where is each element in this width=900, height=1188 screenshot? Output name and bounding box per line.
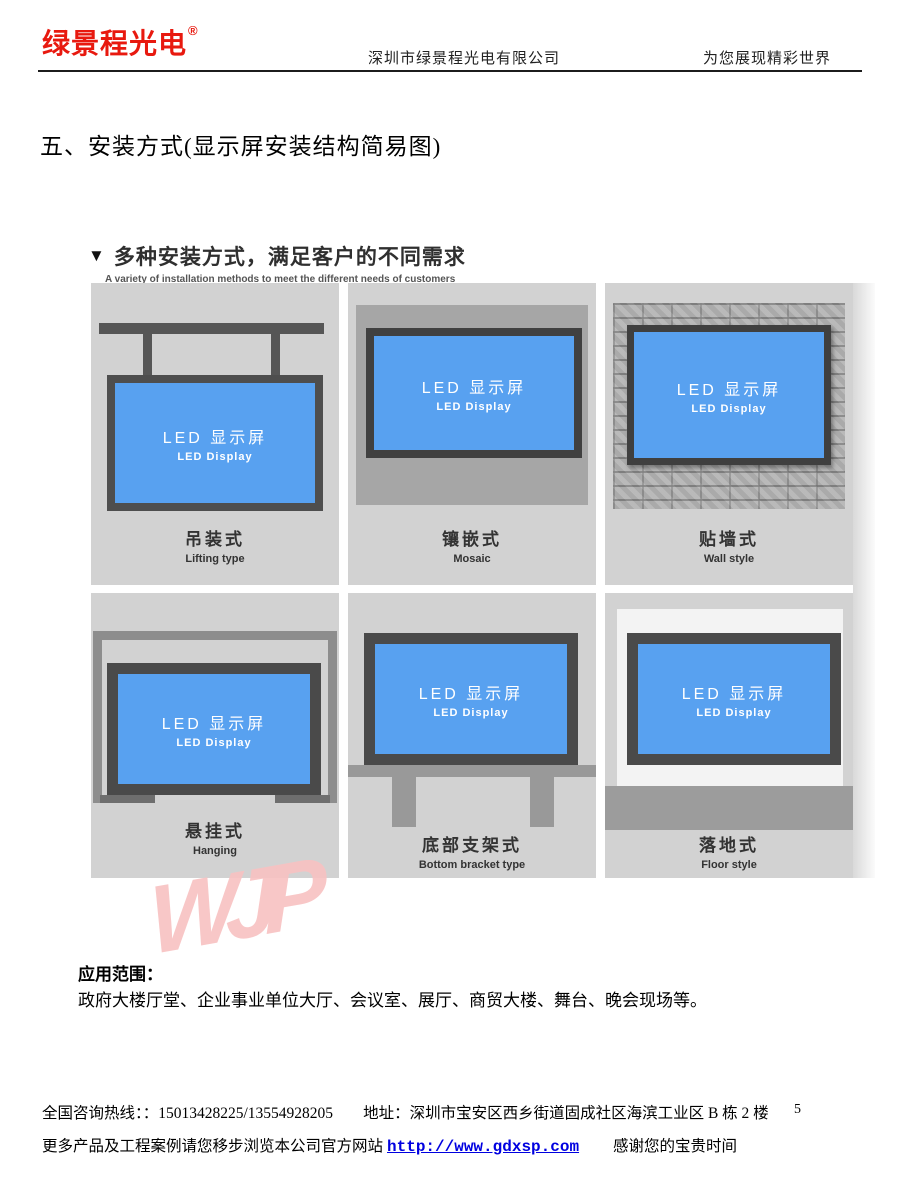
- panel-bottom-bracket: LED 显示屏 LED Display 底部支架式 Bottom bracket…: [348, 593, 596, 878]
- panel-label-cn: 吊装式: [91, 529, 339, 552]
- screen-label-en: LED Display: [436, 401, 511, 413]
- panel-label: 吊装式 Lifting type: [91, 529, 339, 567]
- led-display: LED 显示屏 LED Display: [364, 633, 578, 765]
- footer-line2-prefix: 更多产品及工程案例请您移步浏览本公司官方网站: [42, 1138, 383, 1155]
- header-company-name: 深圳市绿景程光电有限公司: [368, 47, 560, 68]
- registered-trademark-icon: ®: [188, 23, 199, 38]
- panel-label-en: Mosaic: [348, 552, 596, 567]
- base-foot: [275, 795, 330, 803]
- screen-label-cn: LED 显示屏: [682, 680, 787, 704]
- panel-hanging: LED 显示屏 LED Display 悬挂式 Hanging: [91, 593, 339, 878]
- footer-hotline: 全国咨询热线：：15013428225/13554928205: [42, 1105, 333, 1122]
- section-title: 五、安装方式(显示屏安装结构简易图): [40, 127, 441, 161]
- panel-label-en: Lifting type: [91, 552, 339, 567]
- panel-label-cn: 悬挂式: [91, 821, 339, 844]
- panel-label: 贴墙式 Wall style: [605, 529, 853, 567]
- footer-address: 地址：深圳市宝安区西乡街道固成社区海滨工业区 B 栋 2 楼: [363, 1105, 769, 1122]
- panel-mosaic: LED 显示屏 LED Display 镶嵌式 Mosaic: [348, 283, 596, 585]
- led-display: LED 显示屏 LED Display: [627, 325, 831, 465]
- header-slogan: 为您展现精彩世界: [703, 47, 831, 68]
- panel-lifting: LED 显示屏 LED Display 吊装式 Lifting type: [91, 283, 339, 585]
- side-post: [93, 631, 102, 803]
- led-display: LED 显示屏 LED Display: [366, 328, 582, 458]
- hanger-rod: [271, 334, 280, 376]
- panel-label-cn: 底部支架式: [348, 835, 596, 858]
- screen-label-en: LED Display: [177, 451, 252, 463]
- diagram-grid: LED 显示屏 LED Display 吊装式 Lifting type LED…: [91, 283, 853, 878]
- diagram-title: 多种安装方式，满足客户的不同需求: [114, 241, 466, 271]
- top-bar: [93, 631, 337, 640]
- bracket-leg: [392, 777, 416, 827]
- screen-label-cn: LED 显示屏: [419, 680, 524, 704]
- panel-label-cn: 镶嵌式: [348, 529, 596, 552]
- website-link[interactable]: http://www.gdxsp.com: [387, 1138, 579, 1156]
- application-body: 政府大楼厅堂、企业事业单位大厅、会议室、展厅、商贸大楼、舞台、晚会现场等。: [78, 988, 707, 1014]
- panel-label-en: Wall style: [605, 552, 853, 567]
- page-number: 5: [794, 1102, 801, 1118]
- panel-label-cn: 落地式: [605, 835, 853, 858]
- screen-label-en: LED Display: [176, 737, 251, 749]
- floor-base: [605, 786, 853, 830]
- panel-label-cn: 贴墙式: [605, 529, 853, 552]
- bracket-bar: [348, 765, 596, 777]
- installation-diagram: ▼ 多种安装方式，满足客户的不同需求 A variety of installa…: [88, 241, 878, 881]
- panel-label: 底部支架式 Bottom bracket type: [348, 835, 596, 873]
- bracket-leg: [530, 777, 554, 827]
- panel-label: 悬挂式 Hanging: [91, 821, 339, 859]
- side-post: [328, 631, 337, 803]
- screen-label-cn: LED 显示屏: [163, 424, 268, 448]
- ceiling-bar: [99, 323, 324, 334]
- hanger-rod: [143, 334, 152, 376]
- screen-label-en: LED Display: [691, 403, 766, 415]
- led-display: LED 显示屏 LED Display: [627, 633, 841, 765]
- application-range: 应用范围： 政府大楼厅堂、企业事业单位大厅、会议室、展厅、商贸大楼、舞台、晚会现…: [78, 962, 707, 1015]
- company-logo: 绿景程光电®: [42, 22, 199, 62]
- panel-label-en: Floor style: [605, 858, 853, 873]
- screen-label-cn: LED 显示屏: [162, 710, 267, 734]
- screen-label-en: LED Display: [696, 707, 771, 719]
- document-page: 绿景程光电® 深圳市绿景程光电有限公司 为您展现精彩世界 五、安装方式(显示屏安…: [0, 0, 900, 1188]
- screen-label-en: LED Display: [433, 707, 508, 719]
- screen-label-cn: LED 显示屏: [677, 376, 782, 400]
- panel-label-en: Bottom bracket type: [348, 858, 596, 873]
- right-fade-strip: [853, 283, 875, 878]
- led-display: LED 显示屏 LED Display: [107, 663, 321, 795]
- led-display: LED 显示屏 LED Display: [107, 375, 323, 511]
- header-divider: [38, 70, 862, 72]
- footer-line2: 更多产品及工程案例请您移步浏览本公司官方网站http://www.gdxsp.c…: [42, 1134, 862, 1156]
- panel-floor-style: LED 显示屏 LED Display 落地式 Floor style: [605, 593, 853, 878]
- diagram-header: ▼ 多种安装方式，满足客户的不同需求: [88, 241, 878, 271]
- base-foot: [100, 795, 155, 803]
- footer-thanks: 感谢您的宝贵时间: [613, 1138, 737, 1155]
- panel-wall-style: LED 显示屏 LED Display 贴墙式 Wall style: [605, 283, 853, 585]
- triangle-marker-icon: ▼: [88, 246, 105, 266]
- panel-label: 镶嵌式 Mosaic: [348, 529, 596, 567]
- panel-label: 落地式 Floor style: [605, 835, 853, 873]
- panel-label-en: Hanging: [91, 844, 339, 859]
- footer-line1: 全国咨询热线：：15013428225/13554928205地址：深圳市宝安区…: [42, 1101, 862, 1123]
- application-heading: 应用范围：: [78, 962, 707, 988]
- logo-text: 绿景程光电: [42, 28, 187, 59]
- screen-label-cn: LED 显示屏: [422, 374, 527, 398]
